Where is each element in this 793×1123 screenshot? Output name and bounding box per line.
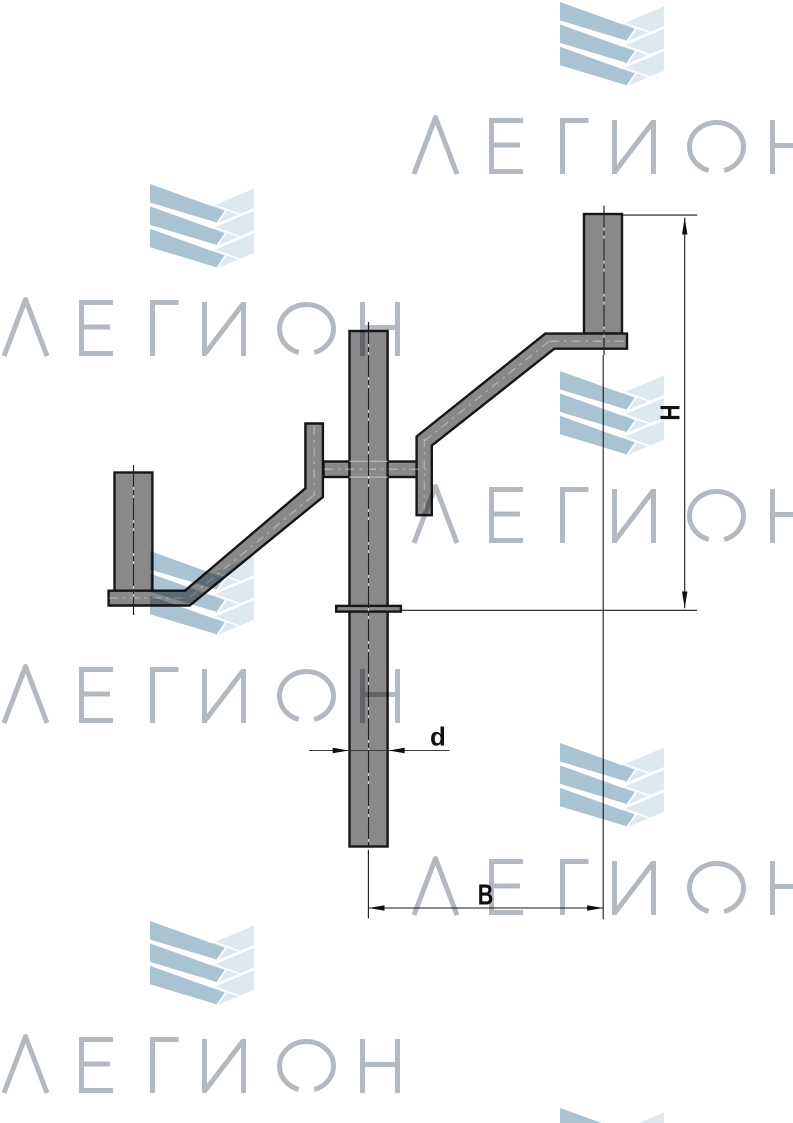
- svg-text:d: d: [430, 722, 446, 752]
